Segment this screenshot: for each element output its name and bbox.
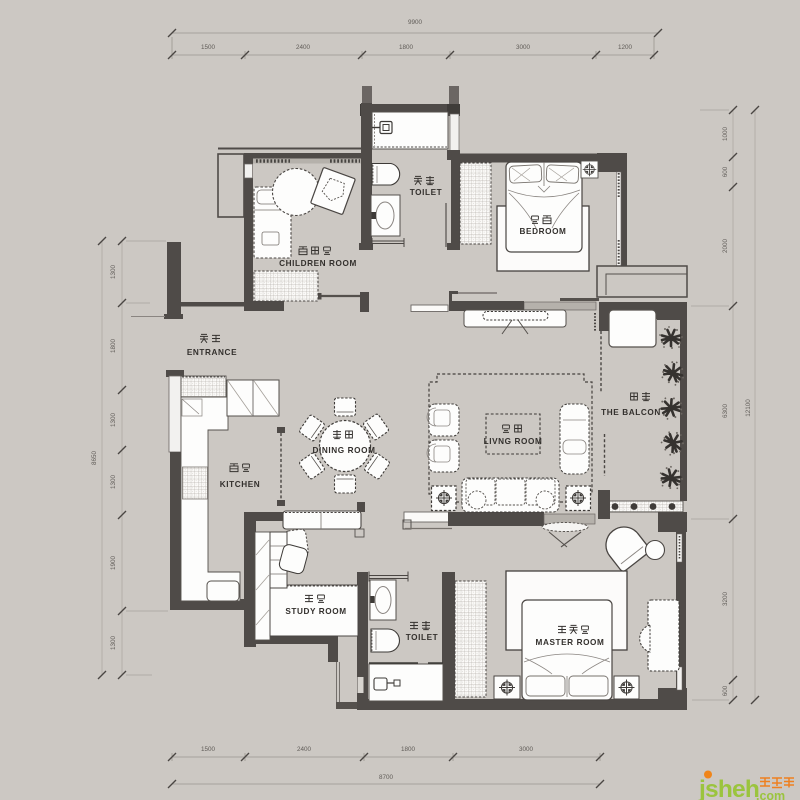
svg-text:DINING ROOM: DINING ROOM — [312, 446, 375, 455]
svg-text:12100: 12100 — [745, 399, 752, 417]
svg-text:1800: 1800 — [401, 746, 416, 753]
svg-text:2400: 2400 — [297, 746, 312, 753]
svg-text:jsheh: jsheh — [698, 776, 759, 800]
svg-text:KITCHEN: KITCHEN — [220, 480, 261, 489]
svg-text:600: 600 — [722, 685, 729, 696]
svg-text:1300: 1300 — [110, 475, 117, 490]
svg-text:2400: 2400 — [296, 44, 311, 51]
svg-text:8700: 8700 — [379, 774, 394, 781]
svg-text:3200: 3200 — [722, 592, 729, 607]
svg-text:1900: 1900 — [110, 556, 117, 571]
svg-text:8650: 8650 — [91, 451, 98, 466]
svg-text:6300: 6300 — [722, 404, 729, 419]
svg-text:1200: 1200 — [618, 44, 633, 51]
svg-text:3000: 3000 — [516, 44, 531, 51]
svg-text:2000: 2000 — [722, 239, 729, 254]
svg-text:STUDY ROOM: STUDY ROOM — [285, 607, 346, 616]
svg-text:LIVNG ROOM: LIVNG ROOM — [484, 437, 543, 446]
svg-text:1300: 1300 — [110, 636, 117, 651]
svg-text:TOILET: TOILET — [410, 188, 443, 197]
svg-text:1800: 1800 — [110, 339, 117, 354]
svg-text:THE BALCON: THE BALCON — [601, 408, 661, 417]
svg-text:TOILET: TOILET — [406, 633, 439, 642]
svg-text:1000: 1000 — [722, 127, 729, 142]
svg-text:1500: 1500 — [201, 746, 216, 753]
svg-text:1300: 1300 — [110, 265, 117, 280]
svg-text:1500: 1500 — [201, 44, 216, 51]
svg-text:1300: 1300 — [110, 413, 117, 428]
svg-text:CHILDREN ROOM: CHILDREN ROOM — [279, 259, 357, 268]
svg-text:600: 600 — [722, 166, 729, 177]
svg-text:3000: 3000 — [519, 746, 534, 753]
svg-text:9900: 9900 — [408, 19, 423, 26]
svg-text:ENTRANCE: ENTRANCE — [187, 348, 237, 357]
svg-text:1800: 1800 — [399, 44, 414, 51]
svg-text:.com: .com — [756, 789, 785, 800]
svg-text:MASTER ROOM: MASTER ROOM — [536, 638, 605, 647]
svg-text:BEDROOM: BEDROOM — [520, 227, 567, 236]
